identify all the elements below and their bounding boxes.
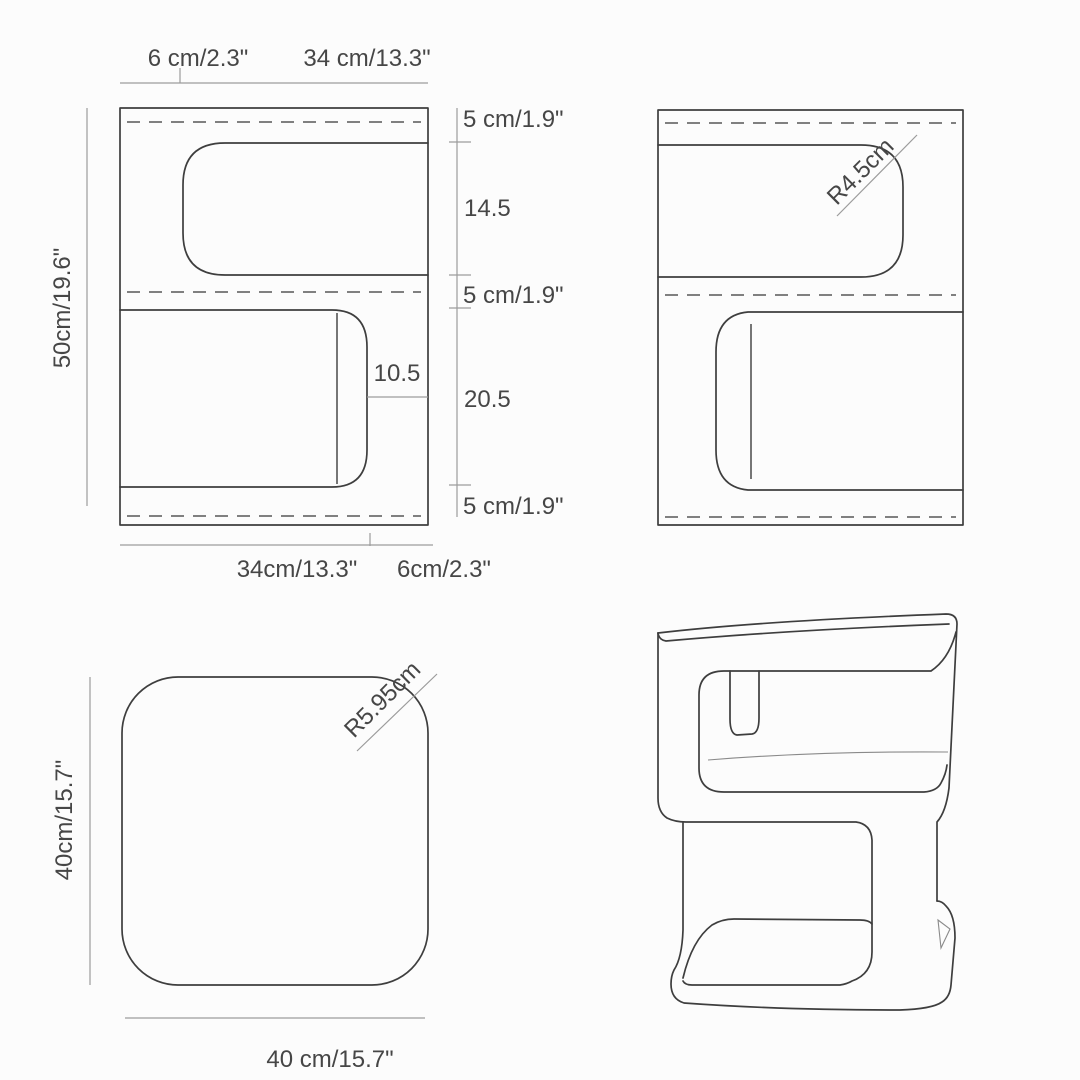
perspective-top-right-outline xyxy=(658,614,957,901)
side-lower-opening xyxy=(716,312,963,490)
top-view: R5.95cm 40cm/15.7" 40 cm/15.7" xyxy=(51,656,437,1073)
side-outline xyxy=(658,110,963,525)
perspective-foot-facet xyxy=(938,920,950,948)
furniture-dimension-diagram: 6 cm/2.3" 34 cm/13.3" 34cm/13.3" 6cm/2.3… xyxy=(0,0,1080,1080)
front-right-label-1: 5 cm/1.9" xyxy=(463,106,564,133)
perspective-body-outline xyxy=(658,633,872,985)
perspective-top-face-edge xyxy=(658,624,949,641)
front-bottom-dim-large-label: 34cm/13.3" xyxy=(237,556,358,583)
perspective-base-outline xyxy=(671,822,955,1010)
front-top-dim-small-label: 6 cm/2.3" xyxy=(148,45,249,72)
front-right-label-4: 20.5 xyxy=(464,386,511,413)
front-top-dim-large-label: 34 cm/13.3" xyxy=(303,45,430,72)
front-upper-opening xyxy=(183,143,428,275)
perspective-upper-opening xyxy=(699,632,956,792)
top-left-dim-label: 40cm/15.7" xyxy=(51,760,78,881)
top-bottom-dim-label: 40 cm/15.7" xyxy=(266,1046,393,1073)
front-inner-dim-label: 10.5 xyxy=(374,360,421,387)
front-right-label-2: 14.5 xyxy=(464,195,511,222)
front-right-label-3: 5 cm/1.9" xyxy=(463,282,564,309)
side-view: R4.5cm xyxy=(658,110,963,525)
top-outline xyxy=(122,677,428,985)
front-bottom-dim-small-label: 6cm/2.3" xyxy=(397,556,491,583)
perspective-lower-opening xyxy=(683,919,872,978)
front-right-scale: 5 cm/1.9" 14.5 5 cm/1.9" 20.5 5 cm/1.9" xyxy=(449,106,564,520)
front-left-dim-label: 50cm/19.6" xyxy=(49,248,76,369)
diagram-svg: 6 cm/2.3" 34 cm/13.3" 34cm/13.3" 6cm/2.3… xyxy=(0,0,1080,1080)
front-view: 6 cm/2.3" 34 cm/13.3" 34cm/13.3" 6cm/2.3… xyxy=(49,45,564,583)
perspective-view xyxy=(658,614,957,1010)
front-outline xyxy=(120,108,428,525)
front-right-label-5: 5 cm/1.9" xyxy=(463,493,564,520)
perspective-handle-slot xyxy=(730,671,759,735)
top-radius-label: R5.95cm xyxy=(339,656,426,743)
front-lower-opening xyxy=(120,310,367,487)
perspective-shelf-back-edge xyxy=(708,752,948,760)
